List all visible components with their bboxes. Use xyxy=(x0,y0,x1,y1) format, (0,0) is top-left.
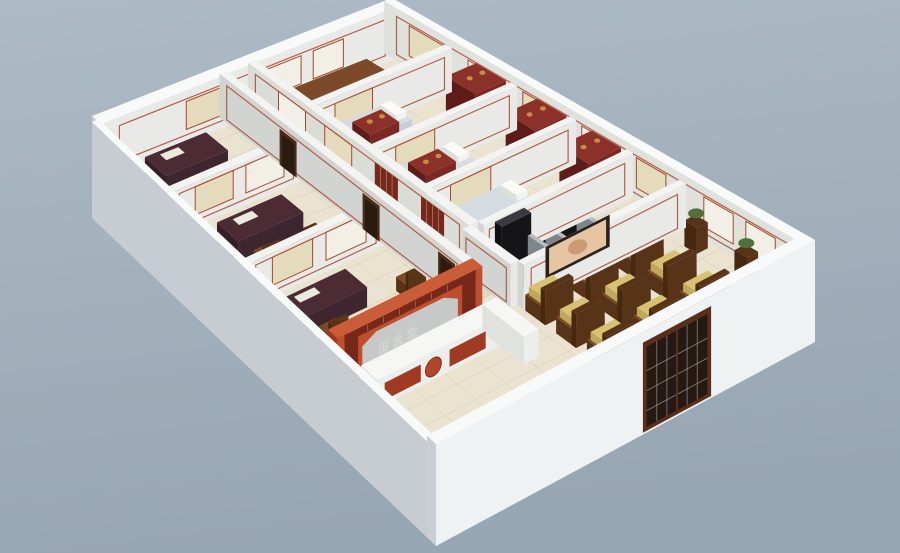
clinic-3d-floorplan: 国医堂 xyxy=(0,0,900,553)
render-viewport: 国医堂 xyxy=(0,0,900,553)
